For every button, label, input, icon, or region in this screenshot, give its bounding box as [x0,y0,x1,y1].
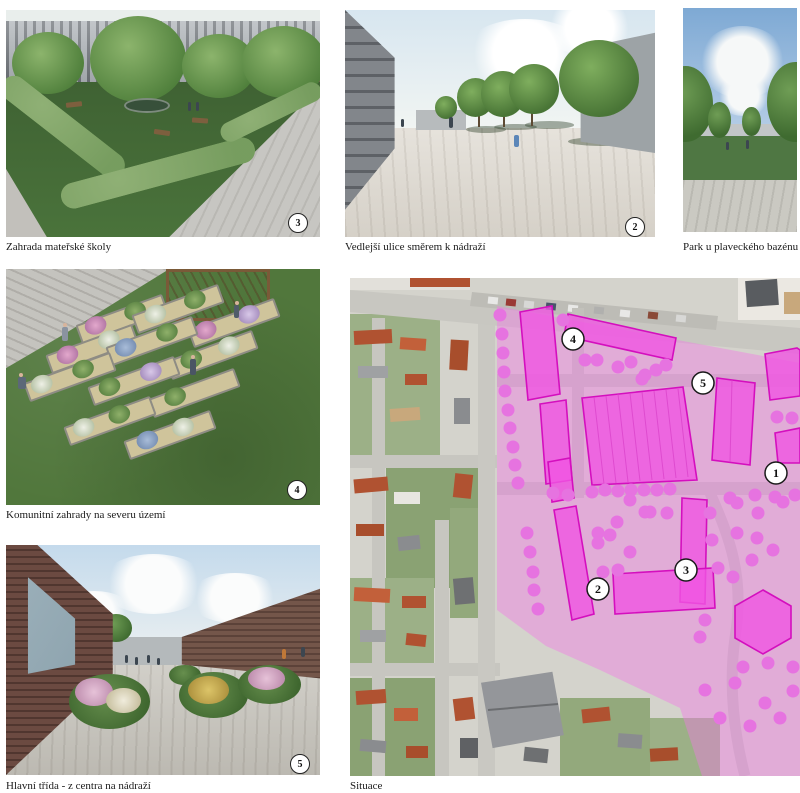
person-figure [234,305,239,318]
person-figure [18,377,26,389]
badge-label: 5 [298,759,303,770]
person-figure [135,657,138,665]
presentation-board: 3 Zahrada mateřské školy 2 Vedlejší ulic… [0,0,800,793]
badge-3: 3 [683,563,689,577]
pink-flowers [248,667,286,690]
person-figure [62,327,68,341]
person-figure [282,649,286,659]
rendering-community-gardens: 4 [6,269,320,505]
cafe-table [157,658,160,665]
sandpit [124,98,170,113]
rendering-side-street: 2 [345,10,655,237]
building [712,378,755,465]
person-figure [190,359,196,375]
person-figure [449,117,453,128]
image-number-badge: 2 [625,217,645,237]
image-number-badge: 5 [290,754,310,774]
badge-4: 4 [570,332,576,346]
lawn [683,136,797,183]
child-figure [514,135,519,147]
street-tree [435,96,457,119]
badge-5: 5 [700,376,706,390]
tree-canopy [708,102,731,138]
person-figure [301,647,305,657]
paved-path [683,180,797,232]
badge-label: 2 [633,222,638,233]
foreground-tree [559,40,640,117]
person-figure [401,119,404,127]
image-number-badge: 4 [287,480,307,500]
caption-kindergarten-garden: Zahrada mateřské školy [6,241,111,253]
yellow-flowers [188,676,229,704]
caption-community-gardens: Komunitní zahrady na severu území [6,509,165,521]
person-figure [746,140,749,149]
street-tree [509,64,559,114]
person-figure [196,102,199,111]
caption-site-plan: Situace [350,780,382,792]
rendering-pool-park [683,8,797,232]
tree-canopy [90,16,186,102]
badge-label: 3 [296,218,301,229]
building [520,306,560,400]
building [613,568,715,614]
white-flowers [106,688,141,713]
building [775,428,800,463]
caption-side-street: Vedlejší ulice směrem k nádraží [345,241,486,253]
bench [192,117,208,123]
site-plan-drawing: 1 2 3 4 5 [350,278,800,776]
rendering-main-street: 5 [6,545,320,775]
caption-pool-park: Park u plaveckého bazénu [683,241,798,253]
tree-canopy [742,107,760,136]
building [765,348,800,400]
person-figure [188,102,191,111]
badge-1: 1 [773,466,779,480]
rendering-kindergarten-garden: 3 [6,10,320,237]
caption-main-street: Hlavní třída - z centra na nádraží [6,780,151,792]
image-number-badge: 3 [288,213,308,233]
badge-label: 4 [295,485,300,496]
badge-2: 2 [595,582,601,596]
site-plan: 1 2 3 4 5 [350,278,800,776]
